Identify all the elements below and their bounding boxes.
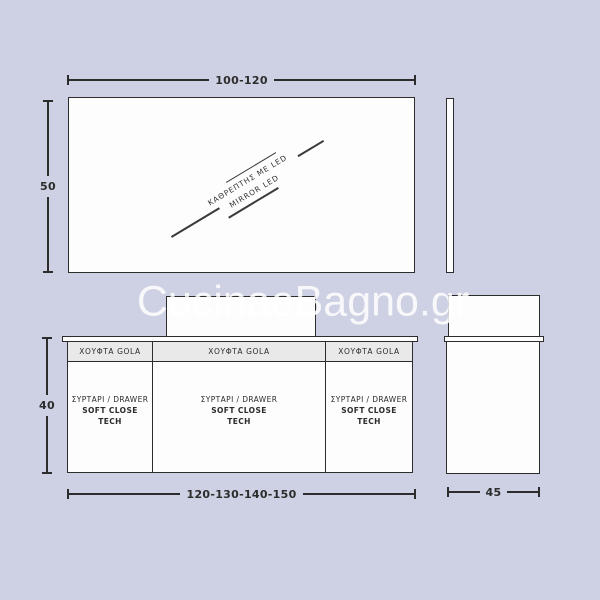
dimension-tick xyxy=(414,489,416,499)
mirror-height-dimension: 50 xyxy=(41,100,55,273)
gola-handle-label: ΧΟΥΦΤΑ GOLA xyxy=(68,342,152,362)
drawer-left: ΣΥΡΤΑΡΙ / DRAWER SOFT CLOSE TECH xyxy=(68,362,152,472)
cabinet-width-label: 120-130-140-150 xyxy=(186,489,296,500)
cabinet-column-right: ΧΟΥΦΤΑ GOLA ΣΥΡΤΑΡΙ / DRAWER SOFT CLOSE … xyxy=(325,342,412,472)
drawer-center: ΣΥΡΤΑΡΙ / DRAWER SOFT CLOSE TECH xyxy=(153,362,325,472)
cabinet-column-left: ΧΟΥΦΤΑ GOLA ΣΥΡΤΑΡΙ / DRAWER SOFT CLOSE … xyxy=(68,342,152,472)
mirror-width-dimension: 100-120 xyxy=(67,74,416,86)
dimension-line xyxy=(69,79,209,81)
soft-close-label: SOFT CLOSE xyxy=(211,405,267,416)
dimension-line xyxy=(507,491,538,493)
tech-label: TECH xyxy=(98,416,122,427)
cabinet-height-dimension: 40 xyxy=(40,337,54,474)
cabinet-depth-dimension: 45 xyxy=(447,486,540,498)
tech-label: TECH xyxy=(227,416,251,427)
cabinet-side-view xyxy=(446,341,540,474)
cabinet-depth-label: 45 xyxy=(486,487,502,498)
soft-close-label: SOFT CLOSE xyxy=(82,405,138,416)
diagonal-dash-left xyxy=(171,207,220,237)
dimension-line xyxy=(303,493,414,495)
dimension-tick xyxy=(42,472,52,474)
drawer-label: ΣΥΡΤΑΡΙ / DRAWER xyxy=(201,394,278,405)
cabinet-width-dimension: 120-130-140-150 xyxy=(67,488,416,500)
drawer-right: ΣΥΡΤΑΡΙ / DRAWER SOFT CLOSE TECH xyxy=(326,362,412,472)
dimension-line xyxy=(47,197,49,271)
dimension-tick xyxy=(414,75,416,85)
gola-handle-label: ΧΟΥΦΤΑ GOLA xyxy=(326,342,412,362)
site-watermark: CucinaeBagno.gr xyxy=(137,278,469,327)
mirror-front-view: ΚΑΘΡΕΠΤΗΣ ΜΕ LED MIRROR LED xyxy=(68,97,415,273)
mirror-led-annotation: ΚΑΘΡΕΠΤΗΣ ΜΕ LED MIRROR LED xyxy=(204,149,299,224)
dimension-line xyxy=(47,102,49,176)
dimension-line xyxy=(274,79,414,81)
drawer-label: ΣΥΡΤΑΡΙ / DRAWER xyxy=(72,394,149,405)
mirror-side-view xyxy=(446,98,454,273)
cabinet-front-view: ΧΟΥΦΤΑ GOLA ΣΥΡΤΑΡΙ / DRAWER SOFT CLOSE … xyxy=(67,341,413,473)
drawer-label: ΣΥΡΤΑΡΙ / DRAWER xyxy=(331,394,408,405)
mirror-height-label: 50 xyxy=(40,181,56,192)
dimension-line xyxy=(46,416,48,472)
gola-handle-label: ΧΟΥΦΤΑ GOLA xyxy=(153,342,325,362)
dimension-line xyxy=(449,491,480,493)
dimension-diagram: 100-120 50 ΚΑΘΡΕΠΤΗΣ ΜΕ LED MIRROR LED xyxy=(0,0,600,600)
dimension-line xyxy=(69,493,180,495)
diagonal-dash-right xyxy=(297,140,323,157)
dimension-tick xyxy=(43,271,53,273)
dimension-tick xyxy=(538,487,540,497)
cabinet-column-center: ΧΟΥΦΤΑ GOLA ΣΥΡΤΑΡΙ / DRAWER SOFT CLOSE … xyxy=(152,342,325,472)
mirror-width-label: 100-120 xyxy=(215,75,268,86)
dimension-line xyxy=(46,339,48,395)
cabinet-height-label: 40 xyxy=(39,400,55,411)
tech-label: TECH xyxy=(357,416,381,427)
soft-close-label: SOFT CLOSE xyxy=(341,405,397,416)
